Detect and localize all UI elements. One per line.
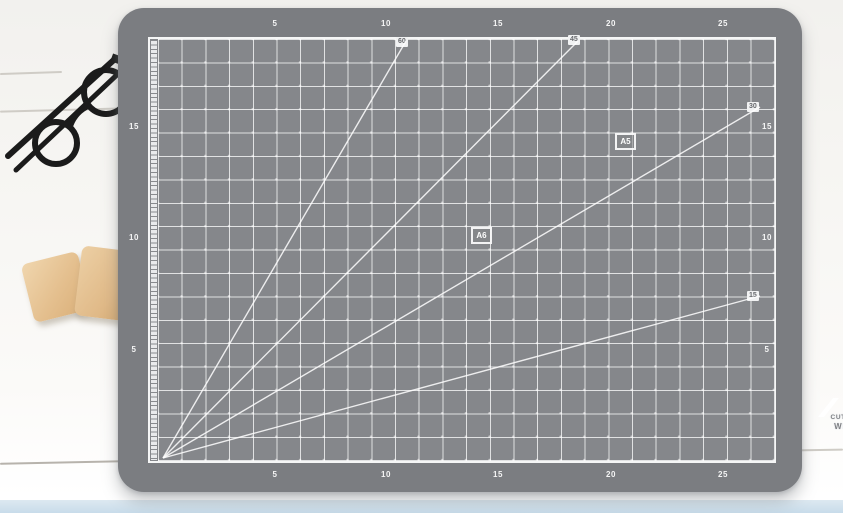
plank-gap-line (796, 449, 843, 452)
size-label-a5: A5 (615, 133, 636, 150)
ruler-number-bottom: 25 (714, 470, 732, 479)
glasses-bridge (71, 106, 89, 125)
ruler-number-bottom: 5 (266, 470, 284, 479)
ruler-number-bottom: 10 (377, 470, 395, 479)
mat-grid (158, 39, 775, 461)
ruler-number-left: 10 (125, 233, 143, 242)
angle-label-30: 30 (747, 102, 759, 112)
angle-label-60: 60 (396, 37, 408, 47)
ruler-number-top: 10 (377, 19, 395, 28)
ruler-number-right: 5 (758, 345, 776, 354)
ruler-number-right: 10 (758, 233, 776, 242)
ruler-number-bottom: 20 (602, 470, 620, 479)
blade-icon (818, 398, 842, 418)
mat-logo: A4 CUTTING MAT WINSTAR (816, 394, 843, 431)
mat-left-ruler-ticks (151, 40, 157, 460)
angle-label-45: 45 (568, 35, 580, 45)
angle-label-15: 15 (747, 291, 759, 301)
ruler-number-top: 15 (489, 19, 507, 28)
ruler-number-top: 20 (602, 19, 620, 28)
photo-scene: 5 10 15 20 25 5 10 15 20 25 15 10 5 15 1… (0, 0, 843, 513)
size-label-a6: A6 (471, 227, 492, 244)
ruler-number-right: 15 (758, 122, 776, 131)
table-edge-blue-strip (0, 500, 843, 513)
cutting-mat: 5 10 15 20 25 5 10 15 20 25 15 10 5 15 1… (118, 8, 802, 492)
ruler-number-left: 5 (125, 345, 143, 354)
glasses-temple-arm (16, 71, 121, 170)
ruler-number-left: 15 (125, 122, 143, 131)
logo-line2: WINSTAR (816, 422, 843, 431)
ruler-number-bottom: 15 (489, 470, 507, 479)
ruler-number-top: 25 (714, 19, 732, 28)
ruler-number-top: 5 (266, 19, 284, 28)
